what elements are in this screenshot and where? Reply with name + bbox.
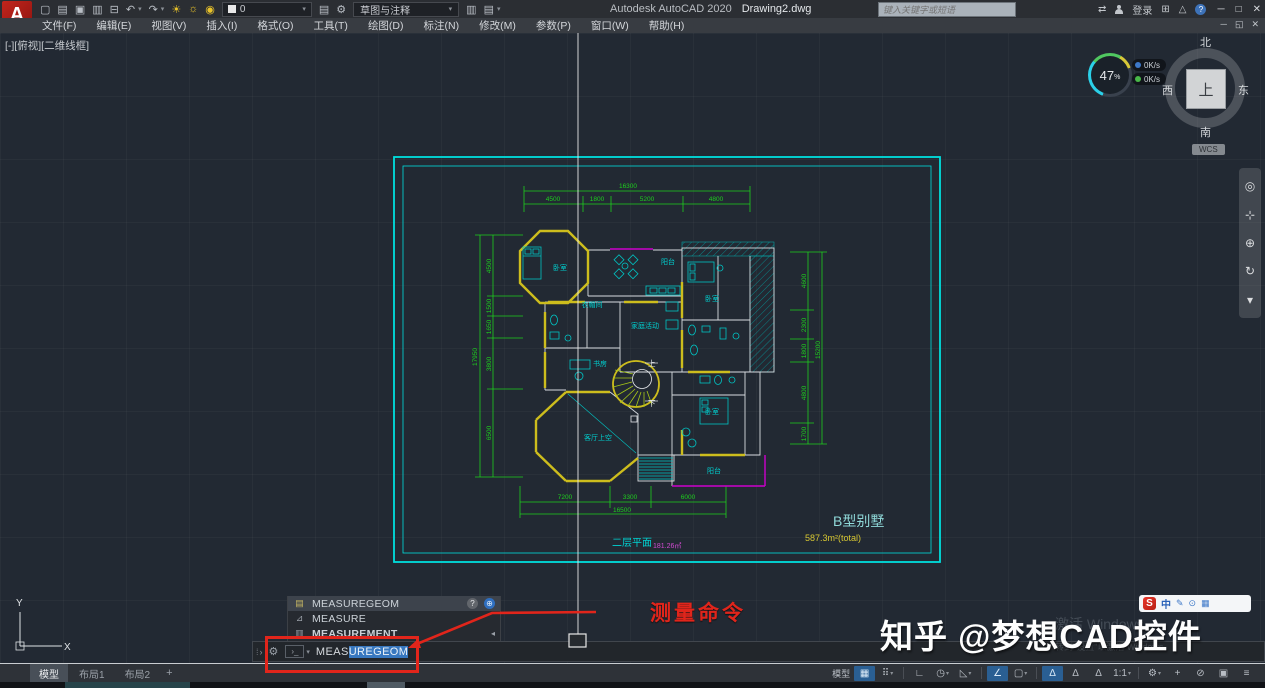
viewcube[interactable]: 上 北 西 东 南 WCS <box>1150 36 1260 156</box>
menu-format[interactable]: 格式(O) <box>247 18 303 33</box>
speed-gauge[interactable]: 47% <box>1088 53 1132 97</box>
upload-dot-icon <box>1135 62 1141 68</box>
redo-icon[interactable]: ↷ <box>149 3 158 16</box>
internet-search-icon[interactable]: ⊕ <box>484 598 495 609</box>
svg-text:X: X <box>64 642 71 653</box>
ime-mic-icon[interactable]: ⊙ <box>1189 598 1197 609</box>
workspace-caret-icon[interactable]: ▾ <box>449 5 453 13</box>
status-separator <box>903 667 904 679</box>
taskbar-item <box>65 682 190 688</box>
layer-lock-icon[interactable]: ◉ <box>205 3 215 16</box>
object-snap-toggle[interactable]: ▢▾ <box>1010 666 1031 681</box>
orbit-icon[interactable]: ↻ <box>1245 264 1255 278</box>
viewcube-south[interactable]: 南 <box>1200 124 1211 140</box>
window-title: Autodesk AutoCAD 2020Drawing2.dwg <box>610 3 811 15</box>
doc-minimize-button[interactable]: ─ <box>1221 19 1227 30</box>
object-snap-tracking-toggle[interactable]: ∠ <box>987 666 1008 681</box>
layer-caret-icon[interactable]: ▾ <box>302 5 306 13</box>
menu-insert[interactable]: 插入(I) <box>196 18 247 33</box>
menu-file[interactable]: 文件(F) <box>32 18 86 33</box>
menu-help[interactable]: 帮助(H) <box>639 18 695 33</box>
download-dot-icon <box>1135 76 1141 82</box>
polar-tracking-toggle[interactable]: ◷▾ <box>932 666 953 681</box>
layout-tabs: 模型 布局1 布局2 + <box>30 664 178 682</box>
isolate-objects-toggle[interactable]: ⊘ <box>1190 666 1211 681</box>
ruler-icon: ▤ <box>293 598 306 609</box>
annotation-label: 测量命令 <box>650 597 746 627</box>
layer-value: 0 <box>240 4 246 15</box>
viewcube-east[interactable]: 东 <box>1238 82 1249 98</box>
minimize-button[interactable]: ─ <box>1217 4 1224 15</box>
gauge-percent-sign: % <box>1114 74 1120 81</box>
undo-caret-icon[interactable]: ▾ <box>138 5 142 13</box>
command-suggestions: ▤ MEASUREGEOM ? ⊕ ⊿ MEASURE ▥ MEASUREMEN… <box>287 596 501 641</box>
add-layout-button[interactable]: + <box>161 667 177 679</box>
svg-text:Y: Y <box>16 598 23 609</box>
menu-draw[interactable]: 绘图(D) <box>358 18 414 33</box>
viewport-controls[interactable]: [-][俯视][二维线框] <box>5 38 89 53</box>
layer-on-bulb-icon[interactable]: ☀ <box>171 3 181 16</box>
app-store-cart-icon[interactable]: ⊞ <box>1161 4 1169 15</box>
model-space-toggle[interactable]: 模型 <box>830 666 852 681</box>
quick-access-toolbar: ▢ ▤ ▣ ▥ ⊟ ↶▾ ↷▾ ☀ ☼ ◉ 0 ▾ ▤ ⚙ 草图与注释 ▾ ▥ … <box>40 2 501 17</box>
pan-icon[interactable]: ⊹ <box>1245 208 1255 222</box>
open-file-icon[interactable]: ▤ <box>57 3 67 16</box>
sheet-set-icon[interactable]: ▥ <box>466 3 476 16</box>
menu-tools[interactable]: 工具(T) <box>304 18 358 33</box>
ime-language-label[interactable]: 中 <box>1161 596 1171 611</box>
help-circle-icon[interactable]: ? <box>1195 4 1206 15</box>
drawing-canvas[interactable] <box>0 33 1265 663</box>
layer-dropdown[interactable]: 0 ▾ <box>222 2 312 17</box>
signin-label[interactable]: 登录 <box>1132 2 1152 17</box>
zoom-icon[interactable]: ⊕ <box>1245 236 1255 250</box>
annotation-scale-value[interactable]: 1:1▾ <box>1111 666 1133 681</box>
menu-dimension[interactable]: 标注(N) <box>414 18 470 33</box>
measure-icon: ⊿ <box>293 613 306 624</box>
isodraft-toggle[interactable]: ◺▾ <box>955 666 976 681</box>
undo-icon[interactable]: ↶ <box>126 3 135 16</box>
menu-view[interactable]: 视图(V) <box>141 18 196 33</box>
status-separator <box>981 667 982 679</box>
menu-parametric[interactable]: 参数(P) <box>526 18 581 33</box>
grid-toggle[interactable]: ▦ <box>854 666 875 681</box>
navigation-wheel-icon[interactable]: ◎ <box>1245 179 1255 193</box>
status-separator <box>1036 667 1037 679</box>
navbar-more-icon[interactable]: ▾ <box>1247 293 1253 307</box>
document-title: Drawing2.dwg <box>742 3 812 15</box>
suggestion-measure[interactable]: ⊿ MEASURE <box>287 611 501 626</box>
app-title: Autodesk AutoCAD 2020 <box>610 3 732 15</box>
customization-menu[interactable]: ≡ <box>1236 666 1257 681</box>
title-bar: A ▢ ▤ ▣ ▥ ⊟ ↶▾ ↷▾ ☀ ☼ ◉ 0 ▾ ▤ ⚙ 草图与注释 ▾ … <box>0 0 1265 18</box>
workspace-gear-icon[interactable]: ⚙ <box>336 3 346 16</box>
match-properties-icon[interactable]: ▤ <box>319 3 329 16</box>
annotation-visibility-toggle[interactable]: ∆ <box>1042 666 1063 681</box>
ucs-icon: Y X <box>0 590 110 660</box>
save-icon[interactable]: ▣ <box>75 3 85 16</box>
ime-toolbar[interactable]: S 中 ✎ ⊙ ▦ <box>1139 595 1251 612</box>
layer-freeze-sun-icon[interactable]: ☼ <box>188 3 198 15</box>
doc-restore-button[interactable]: ◱ <box>1235 19 1244 30</box>
save-as-icon[interactable]: ▥ <box>92 3 102 16</box>
menu-edit[interactable]: 编辑(E) <box>86 18 141 33</box>
ime-keyboard-icon[interactable]: ▦ <box>1201 598 1210 609</box>
tab-model[interactable]: 模型 <box>30 664 68 682</box>
new-file-icon[interactable]: ▢ <box>40 3 50 16</box>
menu-window[interactable]: 窗口(W) <box>581 18 639 33</box>
status-bar: 模型 布局1 布局2 + 模型 ▦ ⠿▾ ∟ ◷▾ ◺▾ ∠ ▢▾ ∆ ∆ ∆ … <box>0 663 1265 682</box>
workspace-dropdown[interactable]: 草图与注释 ▾ <box>353 2 459 17</box>
viewcube-north[interactable]: 北 <box>1200 34 1211 50</box>
taskbar-strip <box>0 682 1265 688</box>
autocad-window: 16300 4500 1800 5200 4800 17950 4500 150… <box>0 0 1265 688</box>
annotation-monitor-plus[interactable]: + <box>1167 666 1188 681</box>
status-separator <box>1138 667 1139 679</box>
help-icon[interactable]: ? <box>467 598 478 609</box>
annotation-scale-icon[interactable]: ∆ <box>1088 666 1109 681</box>
close-button[interactable]: ✕ <box>1253 4 1261 15</box>
signin-person-icon[interactable] <box>1115 5 1123 14</box>
ime-pen-icon[interactable]: ✎ <box>1176 598 1184 609</box>
plot-icon[interactable]: ⊟ <box>110 3 119 16</box>
qat-more-caret-icon[interactable]: ▾ <box>497 5 501 13</box>
menu-bar: 文件(F) 编辑(E) 视图(V) 插入(I) 格式(O) 工具(T) 绘图(D… <box>0 18 1265 33</box>
annotation-autoscale-toggle[interactable]: ∆ <box>1065 666 1086 681</box>
sogou-logo-icon[interactable]: S <box>1143 597 1156 610</box>
menu-modify[interactable]: 修改(M) <box>469 18 526 33</box>
autodesk-apps-icon[interactable]: △ <box>1179 4 1187 15</box>
viewcube-west[interactable]: 西 <box>1162 82 1173 98</box>
document-window-controls: ─ ◱ ✕ <box>1221 19 1259 30</box>
navigation-bar[interactable]: ◎ ⊹ ⊕ ↻ ▾ <box>1239 168 1261 318</box>
command-expand-icon[interactable]: › <box>260 647 263 657</box>
tab-layout2[interactable]: 布局2 <box>116 664 160 682</box>
snap-toggle[interactable]: ⠿▾ <box>877 666 898 681</box>
tab-layout1[interactable]: 布局1 <box>70 664 114 682</box>
ortho-toggle[interactable]: ∟ <box>909 666 930 681</box>
submenu-arrow-icon: ◂ <box>491 629 495 638</box>
zhihu-watermark: 知乎 @梦想CAD控件 <box>880 610 1260 658</box>
properties-icon[interactable]: ▤ <box>484 3 494 16</box>
doc-close-button[interactable]: ✕ <box>1251 19 1259 30</box>
wcs-dropdown[interactable]: WCS <box>1192 144 1225 155</box>
suggestion-measuregeom[interactable]: ▤ MEASUREGEOM ? ⊕ <box>287 596 501 611</box>
status-toggles: 模型 ▦ ⠿▾ ∟ ◷▾ ◺▾ ∠ ▢▾ ∆ ∆ ∆ 1:1▾ ⚙▾ + ⊘ ▣… <box>830 664 1257 682</box>
clean-screen-toggle[interactable]: ▣ <box>1213 666 1234 681</box>
viewcube-top-face[interactable]: 上 <box>1186 69 1226 109</box>
search-input[interactable] <box>878 2 1016 17</box>
maximize-button[interactable]: □ <box>1236 4 1242 15</box>
exchange-search-icon[interactable]: ⇄ <box>1098 4 1106 15</box>
redo-caret-icon[interactable]: ▾ <box>161 5 165 13</box>
gauge-percent: 47 <box>1100 68 1114 83</box>
workspace-value: 草图与注释 <box>360 2 410 17</box>
annotation-highlight-box <box>265 636 419 673</box>
taskbar-item <box>367 682 405 688</box>
workspace-switch-gear[interactable]: ⚙▾ <box>1144 666 1165 681</box>
layer-color-swatch <box>228 5 236 13</box>
